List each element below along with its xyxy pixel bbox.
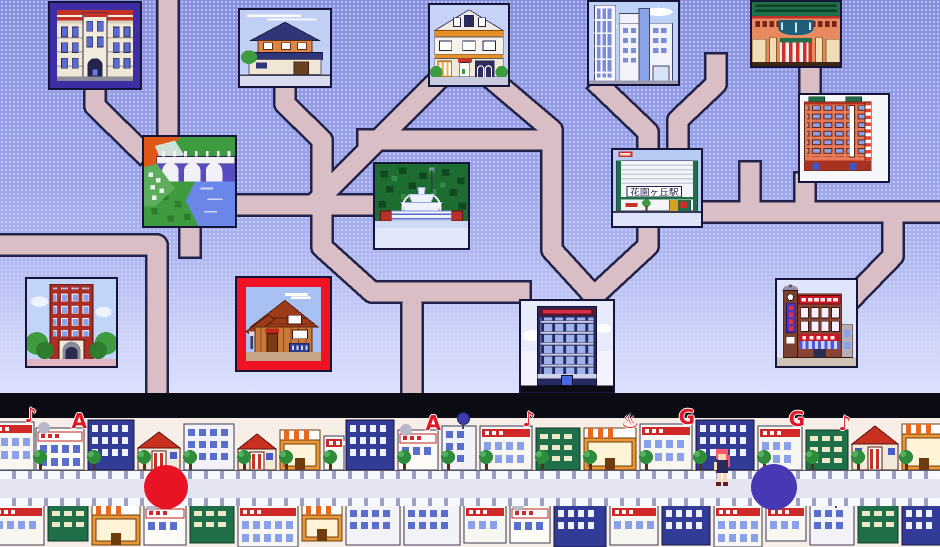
street-building-art: [0, 505, 44, 545]
rail-track: [0, 470, 940, 506]
street-building-art: [404, 505, 460, 545]
street-tree: [804, 448, 820, 470]
street-building-art: [92, 505, 140, 545]
street-building-green: [48, 505, 88, 541]
street-sign-glyph: A: [72, 411, 87, 431]
street-building-apt_white: [404, 505, 460, 545]
street-building-art: [554, 505, 606, 547]
street-building-art: [610, 505, 658, 545]
street-tree: [638, 448, 654, 470]
street-sign-glyph: ♪: [522, 409, 535, 429]
street-building-art: [0, 422, 34, 470]
street-building-art: [766, 505, 806, 541]
map-tile-bridge[interactable]: [142, 135, 237, 228]
office-art: [521, 301, 613, 392]
street-building-art: [238, 505, 298, 547]
street-building-art: [714, 505, 762, 547]
street-tree: [440, 448, 456, 470]
street-tree: [692, 448, 708, 470]
street-building-art: [346, 505, 400, 545]
theater-art: [777, 280, 856, 366]
street-tree: [850, 448, 866, 470]
street-tree: [582, 448, 598, 470]
modern-building-art: [589, 2, 678, 84]
street-building-art: [858, 505, 898, 543]
brick-apartment-art: [27, 279, 116, 366]
map-tile-theater[interactable]: [775, 278, 858, 368]
street-building-apt_blue: [662, 505, 710, 545]
street-building-shop: [464, 505, 506, 543]
red-tower-art: [800, 95, 888, 181]
bridge-art: [144, 137, 235, 226]
street-building-shop: ♪: [238, 505, 298, 547]
map-tile-wood-house[interactable]: [237, 278, 330, 370]
street-building-apt_white: [810, 505, 854, 545]
street-tree: [236, 448, 252, 470]
street-sign-glyph: G: [679, 407, 695, 427]
school-art: [57, 10, 133, 81]
shop-house-art: [430, 5, 508, 85]
department-store-art: [752, 2, 840, 66]
street-building-shop: ♪: [0, 505, 44, 545]
map-tile-brick-apartment[interactable]: [25, 277, 118, 368]
street-building-shop: ♪: [0, 422, 34, 470]
map-tile-office[interactable]: [519, 299, 615, 394]
street-sign-glyph: ♪: [24, 405, 37, 425]
street-sign-glyph: ♨: [621, 411, 639, 431]
street-building-apt_white: [346, 505, 400, 545]
player-marker-red[interactable]: [144, 465, 188, 509]
map-tile-school[interactable]: [50, 3, 140, 88]
player-character: [712, 447, 732, 487]
fountain-art: [375, 164, 468, 248]
wood-house-art: [246, 287, 321, 361]
street-sign-glyph: ♪: [838, 413, 851, 433]
street-tree: [182, 448, 198, 470]
street-tree: [32, 448, 48, 470]
street-tree: [136, 448, 152, 470]
street-building-art: [902, 505, 940, 545]
street-tree: [396, 448, 412, 470]
street-tree: [278, 448, 294, 470]
street-sign-glyph: G: [789, 409, 805, 429]
street-building-art: [662, 505, 710, 545]
street-building-awning: ♨: [92, 505, 140, 545]
map-tile-station[interactable]: 花園ヶ丘駅: [611, 148, 703, 228]
map-tile-red-tower[interactable]: [798, 93, 890, 183]
street-sign-glyph: A: [426, 413, 441, 433]
street-building-art: [144, 505, 186, 545]
map-tile-shop-house[interactable]: [428, 3, 510, 87]
town-map: 花園ヶ丘駅: [0, 0, 940, 393]
street-building-pachinko: A: [144, 505, 186, 545]
player-marker-indigo[interactable]: [751, 464, 797, 510]
street-building-art: [810, 505, 854, 545]
street-building-apt_blue: [554, 505, 606, 547]
japanese-house-art: [240, 10, 330, 86]
street-building-green: [190, 505, 234, 543]
street-building-art: [190, 505, 234, 543]
street-building-awning: [302, 505, 342, 541]
street-tree: [322, 448, 338, 470]
street-building-green: [858, 505, 898, 543]
station-art: 花園ヶ丘駅: [613, 150, 701, 226]
street-building-pachinko: A: [510, 505, 550, 543]
game-screen: 花園ヶ丘駅 ♪AA♪♨GG♪♪♨A♪AGG: [0, 0, 940, 529]
street-building-shop: [766, 505, 806, 541]
street-building-art: [464, 505, 506, 543]
station-sign-text: 花園ヶ丘駅: [630, 187, 678, 198]
map-tile-japanese-house[interactable]: [238, 8, 332, 88]
street-tree: [478, 448, 494, 470]
street-building-apt_blue: [902, 505, 940, 545]
street-tree: [898, 448, 914, 470]
street-building-apt_blue: [346, 420, 394, 470]
street-tree: [534, 448, 550, 470]
street-building-art: [510, 505, 550, 543]
street-building-shop: G: [714, 505, 762, 547]
street-building-shop: G: [610, 505, 658, 545]
map-tile-fountain[interactable]: [373, 162, 470, 250]
street-tree: [86, 448, 102, 470]
street-building-art: [346, 420, 394, 470]
street-building-art: [48, 505, 88, 541]
map-tile-department-store[interactable]: [750, 0, 842, 68]
map-tile-modern-building[interactable]: [587, 0, 680, 86]
street-building-art: [302, 505, 342, 541]
